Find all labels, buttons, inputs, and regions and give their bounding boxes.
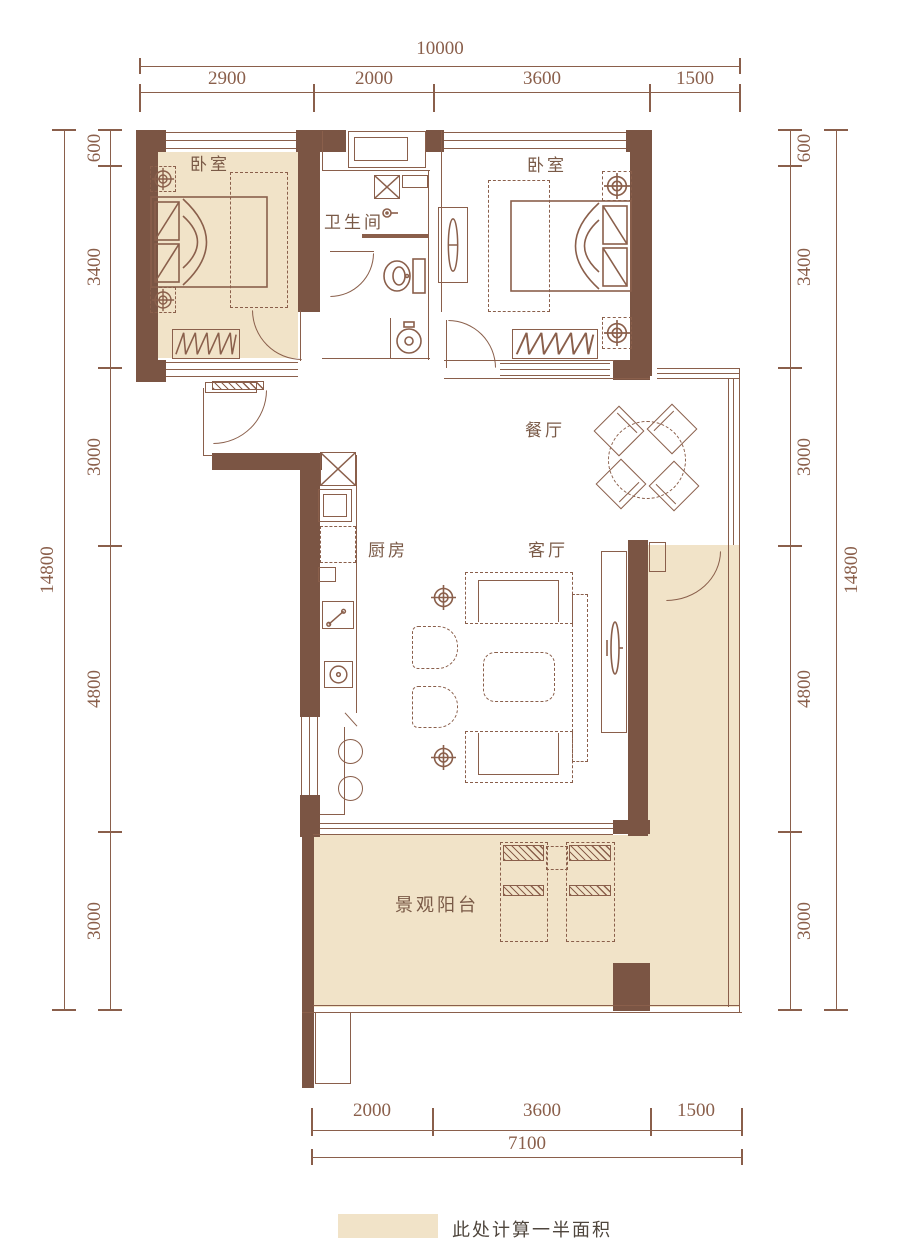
dim-bottom-seg0: 2000 [353, 1100, 391, 1122]
dim-tick [98, 367, 122, 369]
window [166, 148, 296, 149]
dresser-icon [438, 207, 468, 283]
dim-bottom-total: 7100 [508, 1133, 546, 1155]
dim-tick [52, 129, 76, 131]
window [444, 140, 626, 141]
corner-window [728, 378, 729, 545]
stool [338, 776, 363, 801]
window [166, 140, 296, 141]
window [166, 362, 298, 363]
partition [444, 378, 650, 379]
dim-tick [778, 545, 802, 547]
dim-tick [139, 58, 141, 74]
dim-line [836, 130, 837, 1010]
dim-tick [52, 1009, 76, 1011]
room-label-bedroom-left: 卧室 [190, 150, 230, 175]
door-leaf [330, 251, 374, 252]
dim-tick [824, 129, 848, 131]
window [301, 717, 302, 795]
nightstand [150, 287, 176, 313]
corner-window [733, 378, 734, 545]
partition [390, 318, 391, 358]
wall-segment [613, 360, 650, 380]
dim-bottom-seg1: 3600 [523, 1100, 561, 1122]
entry-wall-line [203, 388, 204, 456]
corner-window [657, 373, 740, 374]
window [500, 363, 610, 364]
tv-icon [605, 618, 623, 678]
room-label-balcony: 景观阳台 [395, 891, 479, 917]
wardrobe-icon [172, 329, 240, 359]
dim-right-seg4: 3000 [794, 902, 816, 940]
wall-segment [630, 130, 652, 376]
sofa [465, 731, 573, 783]
nightstand [150, 166, 176, 192]
partition [322, 131, 323, 171]
door-arc-bedroom-right [448, 320, 496, 368]
sliding-door-track [320, 828, 613, 829]
dim-tick [741, 1149, 743, 1165]
dim-left-seg4: 3000 [84, 902, 106, 940]
wall-segment [628, 540, 648, 836]
dim-right-seg0: 600 [794, 134, 816, 163]
window [500, 369, 610, 370]
fridge-icon [320, 452, 356, 486]
shelf [402, 175, 428, 188]
dim-top-seg1: 2000 [355, 68, 393, 90]
dim-tick [739, 84, 741, 112]
dim-right-seg2: 3000 [794, 438, 816, 476]
dim-tick [98, 831, 122, 833]
service-platform [315, 1012, 351, 1084]
window [166, 369, 298, 370]
window [166, 132, 296, 133]
shower-head-icon [382, 207, 398, 219]
corner-window [657, 368, 740, 369]
dim-right-seg3: 4800 [794, 670, 816, 708]
room-label-bathroom: 卫生间 [324, 208, 384, 233]
dim-tick [311, 1149, 313, 1165]
sliding-door-track [313, 834, 613, 835]
bed-icon [150, 196, 268, 288]
window [317, 717, 318, 795]
balcony-rail [739, 368, 740, 1012]
basin-icon [392, 320, 426, 358]
dim-top-seg0: 2900 [208, 68, 246, 90]
dim-tick [313, 84, 315, 112]
door-arc-bathroom [330, 253, 374, 297]
partition [362, 234, 428, 238]
dim-tick [139, 84, 141, 112]
toilet-icon [380, 256, 428, 296]
dim-line [64, 130, 65, 1010]
floor-lamp-icon [430, 744, 457, 771]
nightstand [602, 317, 632, 349]
dim-tick [432, 1108, 434, 1136]
stool [338, 739, 363, 764]
side-table-band [572, 594, 588, 762]
kitchen-cabinet-inner [323, 494, 347, 517]
door-leaf [649, 542, 666, 572]
kitchen-counter-edge [320, 814, 345, 815]
dim-tick [649, 84, 651, 112]
window [166, 376, 298, 377]
dim-right-seg1: 3400 [794, 248, 816, 286]
dim-tick [98, 129, 122, 131]
armchair [412, 686, 458, 728]
dim-top-total: 10000 [416, 38, 464, 60]
floor-plan-canvas: 10000 2900 2000 3600 1500 14800 600 3400… [0, 0, 900, 1258]
legend-label: 此处计算一半面积 [452, 1216, 612, 1242]
dim-left-seg1: 3400 [84, 248, 106, 286]
dim-line [140, 66, 740, 67]
dim-tick [98, 165, 122, 167]
armchair [412, 626, 458, 669]
dim-tick [824, 1009, 848, 1011]
dim-tick [739, 58, 741, 74]
entry-wall-line [203, 455, 213, 456]
dim-tick [778, 129, 802, 131]
dim-tick [98, 1009, 122, 1011]
sliding-door-track [320, 823, 613, 824]
wall-segment [296, 130, 346, 152]
dim-tick [741, 1108, 743, 1136]
nightstand [602, 171, 632, 201]
partition [428, 170, 429, 360]
dim-left-seg2: 3000 [84, 438, 106, 476]
balcony-rail [728, 545, 729, 1007]
dim-tick [778, 1009, 802, 1011]
room-label-dining: 餐厅 [525, 416, 565, 441]
sofa [465, 572, 573, 624]
floor-lamp-icon [430, 584, 457, 611]
balcony-rail [313, 1005, 740, 1006]
bed-icon [510, 200, 632, 292]
dim-right-total: 14800 [841, 546, 863, 594]
wardrobe-icon [512, 329, 598, 359]
dim-left-total: 14800 [37, 546, 59, 594]
wall-segment [302, 820, 314, 1088]
dim-tick [98, 545, 122, 547]
dim-line [110, 130, 111, 1010]
dim-left-seg3: 4800 [84, 670, 106, 708]
kitchen-counter-edge [345, 712, 358, 726]
legend-swatch [338, 1214, 438, 1238]
dim-top-seg3: 1500 [676, 68, 714, 90]
dim-bottom-seg2: 1500 [677, 1100, 715, 1122]
dim-line [312, 1157, 742, 1158]
kitchen-counter-unit [320, 526, 356, 563]
lounger [566, 842, 615, 942]
balcony-table [546, 846, 568, 870]
dim-tick [778, 165, 802, 167]
dim-tick [650, 1108, 652, 1136]
dim-tick [778, 831, 802, 833]
dim-tick [311, 1108, 313, 1136]
wall-segment [136, 360, 166, 382]
dim-line [312, 1130, 742, 1131]
door-arc-entry [213, 390, 267, 444]
wall-column [613, 963, 650, 1011]
room-label-bedroom-right: 卧室 [527, 151, 567, 176]
window [444, 148, 626, 149]
entry-door-leaf [212, 381, 264, 390]
wall-segment [298, 152, 320, 312]
window [444, 132, 626, 133]
balcony-rail [302, 1012, 742, 1013]
dim-line [790, 130, 791, 1010]
lounger [500, 842, 548, 942]
dim-top-seg2: 3600 [523, 68, 561, 90]
window [500, 375, 610, 376]
window [309, 717, 310, 795]
dim-left-seg0: 600 [84, 134, 106, 163]
dim-tick [433, 84, 435, 112]
closet-box-inner [354, 137, 408, 161]
dim-tick [778, 367, 802, 369]
sink-icon [322, 601, 354, 629]
kitchen-small-unit [318, 567, 336, 582]
partition [322, 358, 430, 359]
kitchen-counter-edge [356, 455, 357, 713]
coffee-table [483, 652, 555, 702]
wall-segment [300, 455, 320, 717]
room-label-living: 客厅 [528, 536, 568, 561]
partition [322, 170, 430, 171]
room-label-kitchen: 厨房 [368, 536, 408, 561]
shower-icon [374, 175, 400, 199]
stove-icon [324, 661, 353, 688]
door-leaf [446, 320, 447, 368]
wall-segment [613, 820, 650, 834]
